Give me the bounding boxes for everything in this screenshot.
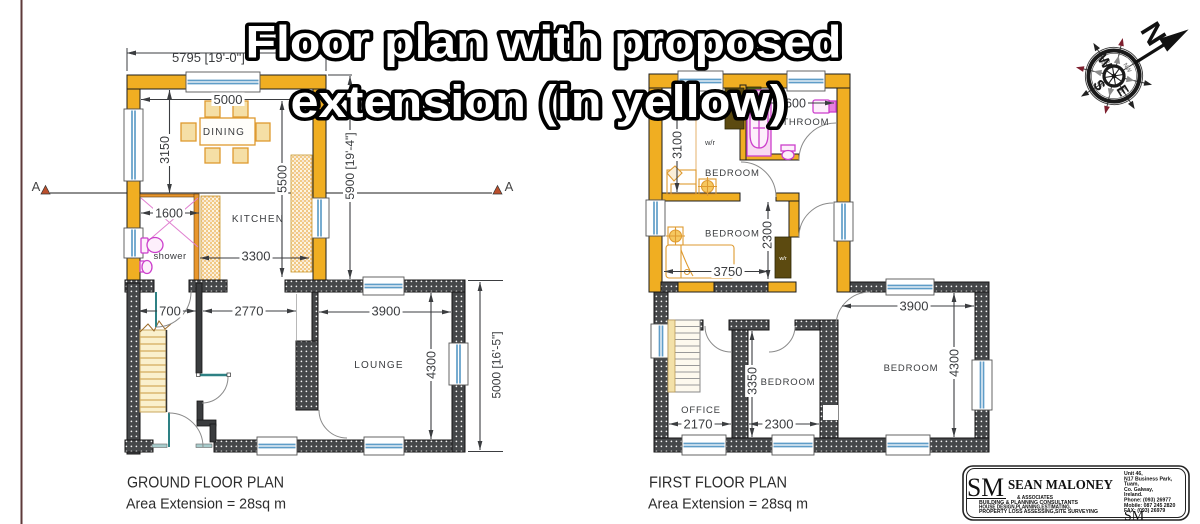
- svg-text:Area Extension = 28sq m: Area Extension = 28sq m: [126, 496, 286, 513]
- svg-text:2300: 2300: [761, 221, 775, 249]
- svg-text:3900: 3900: [900, 299, 929, 314]
- svg-text:2170: 2170: [684, 417, 713, 432]
- svg-text:3350: 3350: [746, 367, 760, 395]
- svg-text:BEDROOM: BEDROOM: [761, 377, 816, 388]
- svg-text:BEDROOM: BEDROOM: [705, 168, 760, 179]
- svg-text:4300: 4300: [948, 349, 962, 377]
- svg-text:5795 [19'-0"]: 5795 [19'-0"]: [172, 50, 245, 65]
- svg-text:w/r: w/r: [704, 138, 716, 147]
- svg-text:PROPERTY LOSS ASSESSING,SITE S: PROPERTY LOSS ASSESSING,SITE SURVEYING: [979, 509, 1098, 515]
- svg-text:SEAN MALONEY: SEAN MALONEY: [1008, 477, 1113, 492]
- svg-text:SM: SM: [1124, 509, 1145, 524]
- svg-text:GROUND FLOOR PLAN: GROUND FLOOR PLAN: [127, 475, 284, 492]
- svg-text:3900: 3900: [372, 304, 401, 319]
- svg-text:FIRST FLOOR PLAN: FIRST FLOOR PLAN: [649, 475, 787, 492]
- svg-text:KITCHEN: KITCHEN: [232, 214, 284, 225]
- svg-text:BEDROOM: BEDROOM: [705, 229, 760, 240]
- svg-text:extension (in yellow): extension (in yellow): [291, 76, 787, 127]
- svg-text:2300: 2300: [765, 417, 794, 432]
- svg-text:5000: 5000: [214, 92, 243, 107]
- svg-text:DINING: DINING: [203, 127, 245, 138]
- svg-text:5900 [19'-4"]: 5900 [19'-4"]: [343, 132, 357, 199]
- svg-text:3300: 3300: [242, 249, 271, 264]
- svg-text:Area Extension = 28sq m: Area Extension = 28sq m: [648, 496, 808, 513]
- svg-text:SM: SM: [967, 473, 1004, 502]
- svg-text:3750: 3750: [714, 264, 743, 279]
- svg-text:BEDROOM: BEDROOM: [884, 363, 939, 374]
- svg-text:Floor plan with proposed: Floor plan with proposed: [246, 17, 842, 68]
- svg-text:1600: 1600: [155, 207, 183, 221]
- svg-text:A: A: [32, 179, 41, 194]
- svg-text:3150: 3150: [158, 136, 172, 164]
- svg-text:A: A: [505, 179, 514, 194]
- svg-text:5500: 5500: [276, 165, 290, 193]
- svg-text:LOUNGE: LOUNGE: [354, 360, 403, 371]
- svg-text:2770: 2770: [235, 304, 264, 319]
- svg-text:3100: 3100: [671, 131, 685, 159]
- svg-text:OFFICE: OFFICE: [681, 405, 721, 416]
- svg-text:w/r: w/r: [778, 256, 787, 262]
- svg-text:700: 700: [159, 304, 181, 319]
- svg-text:4300: 4300: [425, 351, 439, 379]
- svg-text:shower: shower: [153, 251, 186, 262]
- svg-text:5000 [16'-5"]: 5000 [16'-5"]: [489, 331, 503, 398]
